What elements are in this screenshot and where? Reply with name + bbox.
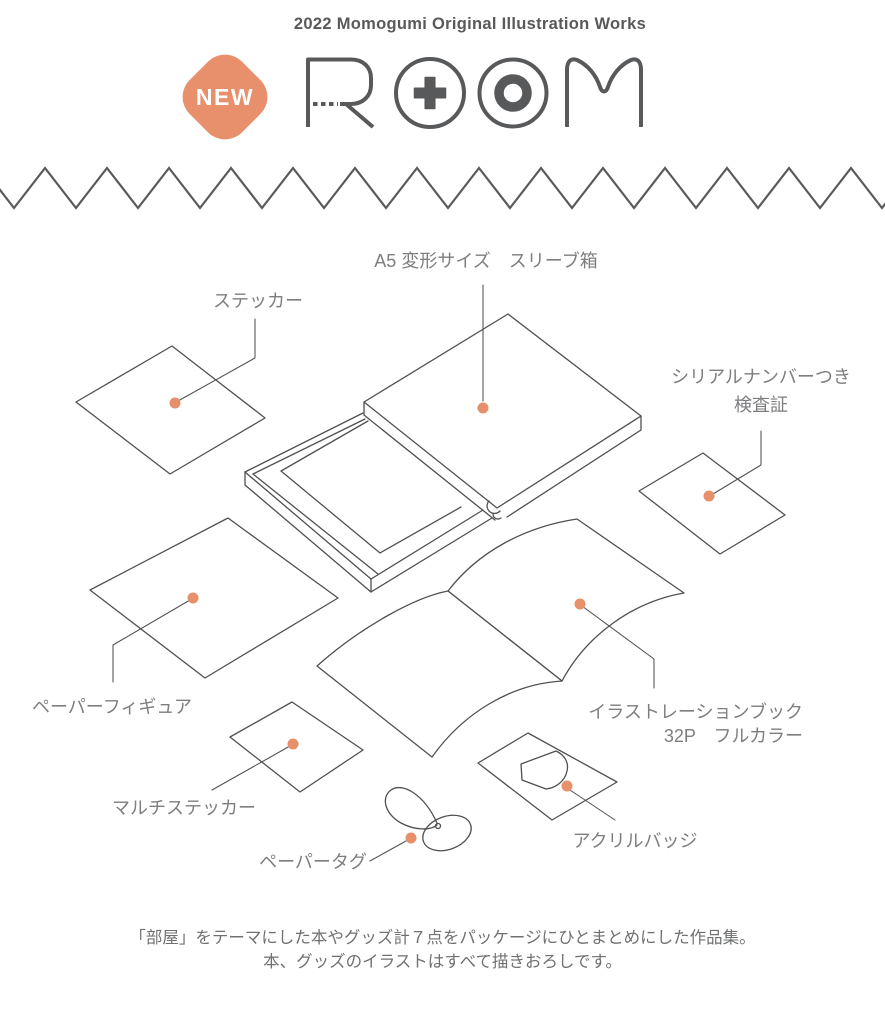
label-sleeve-box: A5 変形サイズ スリーブ箱 [374,251,597,272]
page: 2022 Momogumi Original Illustration Work… [0,0,885,1024]
paper-tag-dot [406,833,417,844]
label-illustration-book-line2: 32P フルカラー [588,724,803,748]
caption-line2: 本、グッズのイラストはすべて描きおろしです。 [0,950,885,974]
label-serial-certificate-line1: シリアルナンバーつき [671,363,851,391]
paper-figure-dot [188,593,199,604]
serial-certificate-dot [704,491,715,502]
label-serial-certificate: シリアルナンバーつき 検査証 [671,363,851,419]
multi-sticker-art [212,702,363,792]
label-sticker: ステッカー [213,291,303,312]
label-paper-figure: ペーパーフィギュア [32,697,192,718]
sticker-dot [170,398,181,409]
sticker-art [76,319,265,474]
paper-tag-art [370,788,476,861]
caption-line1: 「部屋」をテーマにした本やグッズ計７点をパッケージにひとまとめにした作品集。 [0,926,885,950]
caption: 「部屋」をテーマにした本やグッズ計７点をパッケージにひとまとめにした作品集。 本… [0,926,885,974]
paper-figure-art [90,518,338,682]
illustration-book-dot [575,599,586,610]
label-illustration-book: イラストレーションブック 32P フルカラー [588,700,803,748]
label-acrylic-badge: アクリルバッジ [572,831,697,852]
serial-certificate-art [639,431,785,554]
multi-sticker-dot [288,739,299,750]
label-multi-sticker: マルチステッカー [112,798,256,819]
sleeve-box-dot [478,403,489,414]
acrylic-badge-dot [562,781,573,792]
label-illustration-book-line1: イラストレーションブック [588,700,803,724]
label-serial-certificate-line2: 検査証 [671,391,851,419]
package-contents-illustration [0,0,885,1024]
label-paper-tag: ペーパータグ [259,852,367,873]
